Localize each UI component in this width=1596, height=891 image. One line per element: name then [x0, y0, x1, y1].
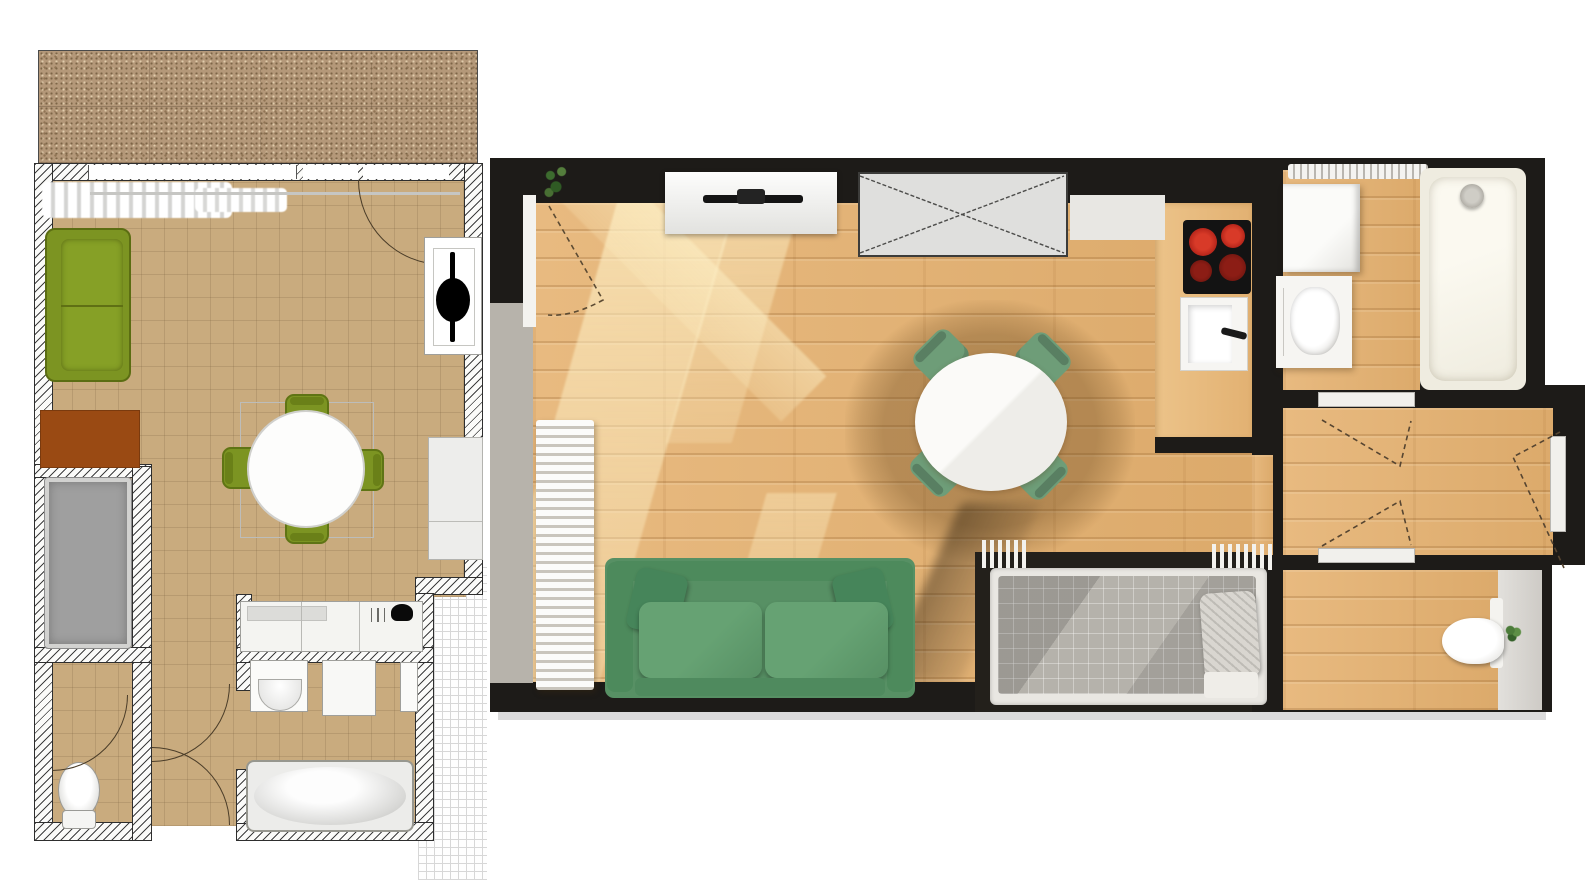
floor-plan-composite	[0, 0, 1596, 891]
render-bathroom-door-swing	[1322, 420, 1411, 466]
render-wc-door-swing	[1322, 501, 1411, 546]
render-balcony-door-swing	[548, 206, 603, 315]
dashed-lines-overlay	[0, 0, 1596, 891]
render-entry-door-swing	[1513, 432, 1564, 568]
